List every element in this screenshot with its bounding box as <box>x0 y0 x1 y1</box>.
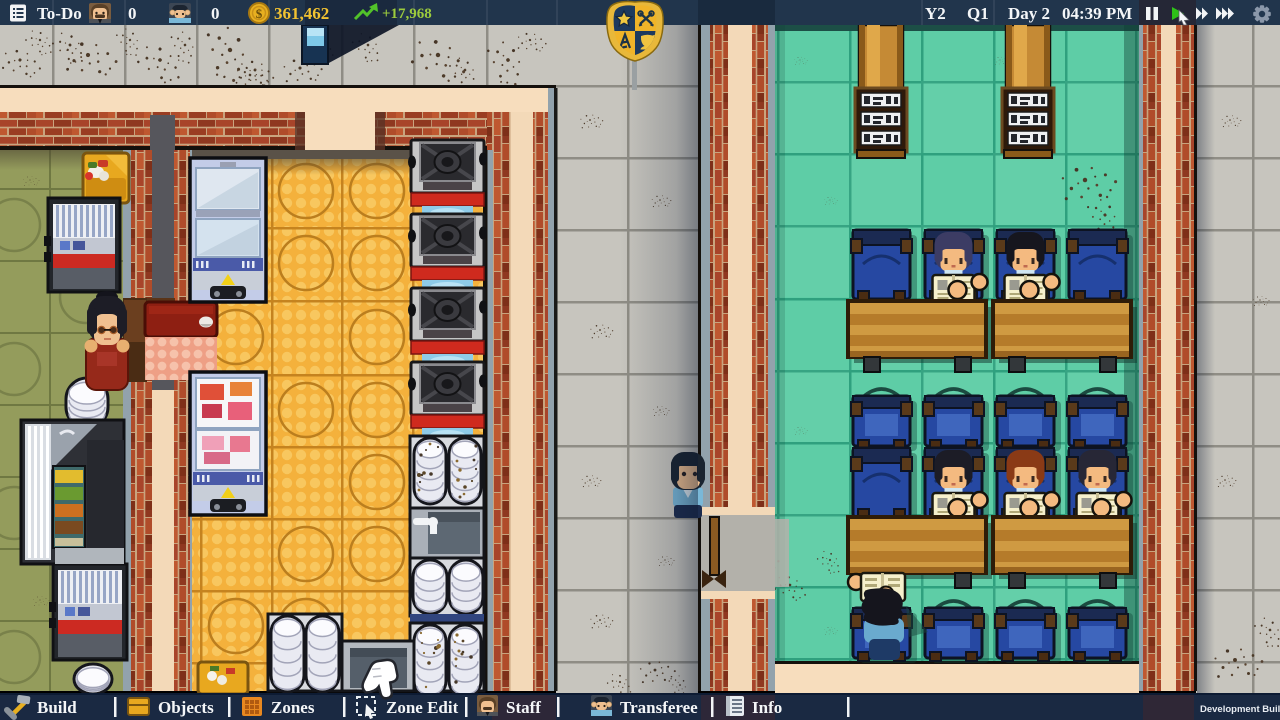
svg-text:Build: Build <box>37 698 77 717</box>
svg-text:Objects: Objects <box>158 698 214 717</box>
svg-text:0: 0 <box>211 4 220 23</box>
svg-text:Zone Edit: Zone Edit <box>386 698 459 717</box>
svg-text:$: $ <box>256 6 263 21</box>
svg-text:Development Build: Development Build <box>1200 704 1280 715</box>
svg-text:361,462: 361,462 <box>274 4 329 23</box>
svg-text:Zones: Zones <box>271 698 315 717</box>
svg-text:Y2: Y2 <box>925 4 946 23</box>
svg-text:Info: Info <box>752 698 782 717</box>
svg-text:Staff: Staff <box>506 698 541 717</box>
svg-text:Day 2: Day 2 <box>1008 4 1050 23</box>
svg-text:Q1: Q1 <box>967 4 989 23</box>
svg-text:Transferee: Transferee <box>620 698 698 717</box>
svg-text:0: 0 <box>128 4 137 23</box>
svg-text:To-Do: To-Do <box>37 4 82 23</box>
svg-text:+17,968: +17,968 <box>382 6 432 22</box>
svg-text:04:39 PM: 04:39 PM <box>1062 4 1132 23</box>
